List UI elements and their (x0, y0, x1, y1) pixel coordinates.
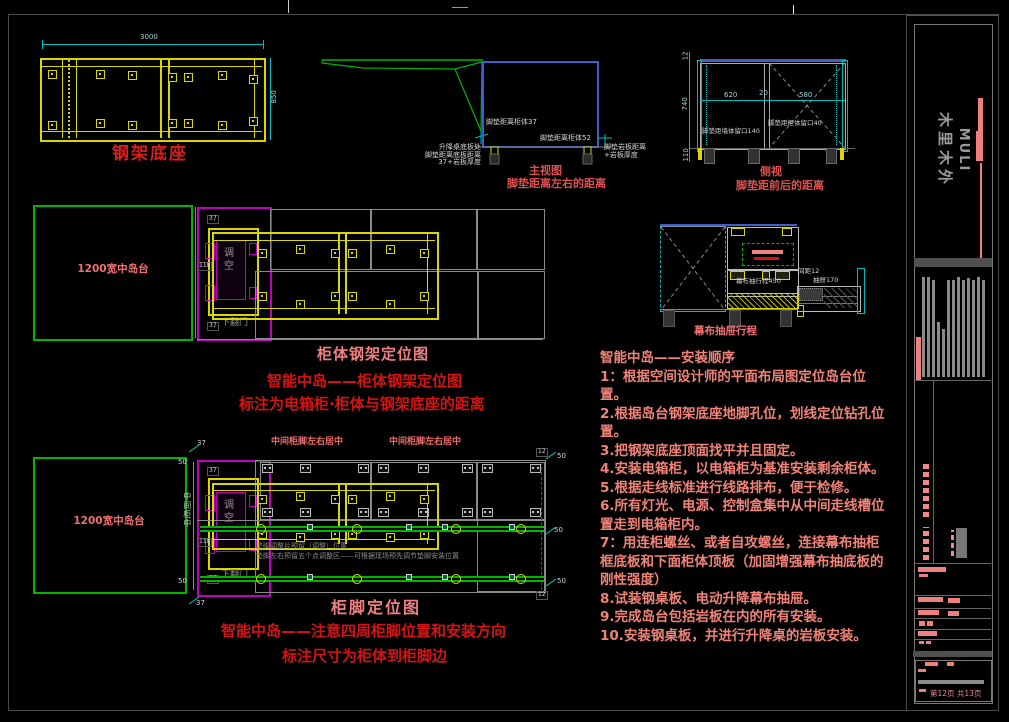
dim-12: 12 (683, 51, 691, 60)
field-text (918, 597, 943, 602)
caption-drawer-travel: 幕布抽屉行程 (694, 326, 757, 338)
field-text (919, 641, 924, 644)
registration-tick (793, 5, 794, 14)
field-text (927, 621, 933, 626)
connector-plate (48, 70, 57, 79)
foot (704, 148, 715, 164)
brand-lockup: MULI 木里木外 (925, 105, 971, 195)
connector-plate (386, 300, 395, 309)
fitting (782, 228, 792, 236)
foot-strip (840, 148, 844, 160)
foot-circle (451, 574, 461, 584)
foot-circle (256, 524, 266, 534)
plan-title: 柜脚定位图 (331, 599, 421, 617)
frame-member (62, 60, 63, 138)
cad-sheet: 3000 850 钢架底座 (0, 0, 1009, 722)
connector-plate (249, 117, 258, 126)
side-post (842, 60, 848, 152)
island-label: 1200宽中岛台 (53, 264, 173, 276)
dim-50: 50 (557, 453, 566, 461)
plan-note-2: 标注尺寸为柜体到柜脚边 (282, 648, 447, 665)
foot (788, 148, 800, 164)
x-brace (769, 63, 845, 148)
plan-note-2: 标注为电箱柜·柜体与钢架底座的距离 (239, 396, 485, 413)
top-rail (700, 59, 846, 62)
instruction-step: 7：用连柜螺丝、或者自攻螺丝，连接幕布抽柜框底板和下面柜体顶板（加固增强幕布抽底… (600, 534, 892, 590)
inner-dotted (836, 65, 837, 145)
foot-circle (451, 524, 461, 534)
frame-line (214, 308, 435, 309)
section-line (914, 380, 991, 381)
x-brace (661, 227, 725, 310)
dim-12: 12 (536, 448, 548, 457)
connector-plate (296, 300, 305, 309)
field-bar (918, 680, 984, 684)
rail-marker (442, 574, 448, 580)
field-text (925, 662, 938, 666)
revision-bar (916, 337, 921, 381)
dim-50: 50 (178, 578, 187, 586)
frame-line (254, 60, 255, 138)
connector-plate (348, 249, 357, 258)
caption-side-view: 侧视 (760, 166, 782, 178)
plan-note-1: 智能中岛——注意四周柜脚位置和安装方向 (221, 623, 506, 640)
dim-box: 118 (197, 538, 212, 547)
connector-plate (96, 70, 105, 79)
connector-plate (296, 245, 305, 254)
connector-plate (420, 495, 429, 504)
dim-37: 37 (196, 600, 205, 608)
cabinet-outline (477, 209, 545, 270)
brand-name-en: MULI (956, 105, 971, 195)
info-bar (937, 322, 940, 377)
label-cabinet-gap: 脚垫距柜体留口40 (768, 120, 822, 127)
dim-box: 118 (197, 262, 212, 271)
revision-bar (978, 98, 983, 131)
connector-plate (128, 71, 137, 80)
label-travel: 幕布抽行程450 (736, 278, 781, 285)
foot-marker (300, 464, 311, 473)
instruction-step: 10.安装钢桌板，并进行升降桌的岩板安装。 (600, 627, 892, 646)
info-bar (927, 277, 930, 377)
connector-plate (48, 121, 57, 130)
rail-marker (406, 574, 412, 580)
dim-box: 37 (207, 467, 219, 476)
frame-line (214, 539, 435, 540)
connector-plate (420, 292, 429, 301)
connector-plate (386, 492, 395, 501)
caption-side-view-sub: 脚垫距前后的距离 (736, 180, 824, 192)
vertical-field-block (956, 528, 967, 558)
foot-marker (530, 508, 541, 517)
row-line (914, 618, 991, 619)
adjust-note-1: 垫脚调整片预留（调整）位置 (256, 543, 347, 551)
field-text (919, 689, 926, 692)
page-number: 第12页 共13页 (930, 690, 981, 698)
connector-plate (168, 119, 177, 128)
registration-tick (288, 0, 289, 13)
field-text (919, 621, 925, 626)
side-post (697, 60, 702, 152)
installation-instructions: 智能中岛——安装顺序 1：根据空间设计师的平面布局图定位岛台位置。 2.根据岛台… (600, 349, 892, 645)
row-line (914, 629, 991, 630)
foot-marker (262, 464, 273, 473)
top-center-label: 中间柜脚左右居中 (389, 438, 461, 448)
note-lift-board: 升降桌底板处 脚垫距离底板距离 37+岩板厚度 (425, 144, 481, 167)
plan-note-1: 智能中岛——柜体钢架定位图 (267, 373, 462, 390)
dim-50: 50 (554, 527, 563, 535)
frame-line (42, 66, 262, 67)
drawer-block (799, 288, 823, 301)
revision-bar (976, 131, 983, 161)
screen-bar-red (754, 257, 779, 260)
info-bar (962, 280, 965, 377)
dim-line (42, 44, 264, 45)
connector-plate (184, 73, 193, 82)
foot-circle (516, 524, 526, 534)
foot-marker (462, 508, 473, 517)
dim-line (700, 100, 845, 101)
cabinet-baseline (197, 339, 543, 340)
brand-name-cn: 木里木外 (935, 105, 956, 195)
connector-plate (348, 495, 357, 504)
label-gap: 间距12 (798, 268, 819, 275)
dim-110: 110 (683, 148, 691, 161)
registration-tick (452, 7, 468, 8)
field-text (948, 611, 959, 616)
frame-member-dotted (68, 60, 70, 138)
frame-member (338, 234, 347, 314)
dim-box: 37 (207, 322, 219, 331)
info-bar (942, 329, 945, 377)
info-bar (952, 280, 955, 377)
instruction-step: 5.根据走线标准进行线路排布，便于检修。 (600, 479, 892, 498)
frame-line (427, 234, 428, 314)
drawing-title: 钢架底座 (112, 145, 188, 164)
note-rock-slab: 脚垫岩板距离 +岩板厚度 (604, 144, 656, 159)
foot-marker (462, 464, 473, 473)
connector-plate (128, 121, 137, 130)
vertical-field-text (923, 527, 929, 560)
instruction-step: 1：根据空间设计师的平面布局图定位岛台位置。 (600, 368, 892, 405)
foot (826, 148, 837, 164)
field-text (918, 610, 939, 615)
foot-circle (256, 574, 266, 584)
connector-plate (218, 121, 227, 130)
screen-bar (752, 250, 783, 254)
vertical-field-text (951, 530, 954, 556)
info-bar (957, 277, 960, 377)
info-bar (932, 280, 935, 377)
dim-box: 37 (207, 215, 219, 224)
sub-column-line (933, 381, 934, 563)
dim-tick (263, 40, 264, 49)
instruction-step: 4.安装电箱柜，以电箱柜为基准安装剩余柜体。 (600, 460, 892, 479)
foot-marker (482, 464, 493, 473)
dim-50: 50 (178, 459, 187, 467)
rail-hatched (727, 293, 799, 309)
foot (748, 148, 760, 164)
foot-circle (352, 574, 362, 584)
foot (780, 310, 792, 327)
dim-width: 3000 (140, 34, 158, 42)
connector-plate (331, 292, 340, 301)
connector-plate (258, 495, 267, 504)
dim-620: 620 (724, 92, 737, 100)
foot-strip (698, 148, 702, 160)
connector-plate (184, 119, 193, 128)
foot-marker (358, 464, 369, 473)
dim-height: 850 (271, 90, 279, 103)
connector-plate (296, 492, 305, 501)
cabinet-outline (477, 271, 545, 339)
titleblock-divider-line (906, 14, 907, 710)
dim-line (195, 207, 196, 338)
connector-plate (258, 292, 267, 301)
foot-marker (530, 464, 541, 473)
rail-marker (406, 524, 412, 530)
instruction-step: 9.完成岛台包括岩板在内的所有安装。 (600, 608, 892, 627)
dim-12: 12 (536, 591, 548, 600)
row-line (914, 639, 991, 640)
field-text (918, 631, 937, 636)
instruction-step: 3.把钢架底座顶面找平并且固定。 (600, 442, 892, 461)
foot-circle (516, 574, 526, 584)
label-drawer: 抽屉170 (813, 277, 838, 284)
side-label: 中间柜中 (182, 492, 191, 528)
label-wall-gap: 脚垫距墙体留口140 (702, 128, 760, 135)
info-bar (977, 277, 980, 377)
connector-plate (386, 245, 395, 254)
rail-marker (307, 574, 313, 580)
plan-title: 柜体钢架定位图 (317, 346, 429, 363)
ebox-door-label: 下翻门 (221, 319, 248, 329)
foot-circle (352, 524, 362, 534)
dim-50: 50 (557, 578, 566, 586)
foot (663, 310, 675, 327)
row-line (914, 595, 991, 596)
revision-bar (980, 163, 982, 258)
drawer-hatch (824, 288, 858, 308)
connector-plate (331, 495, 340, 504)
row-line (914, 608, 991, 609)
info-bar (982, 280, 985, 377)
dim-740: 740 (682, 97, 690, 110)
connector-plate (218, 71, 227, 80)
field-text (918, 567, 946, 572)
info-bar (947, 280, 950, 377)
rail-marker (442, 524, 448, 530)
rail-marker (307, 524, 313, 530)
dim-tick (42, 40, 43, 49)
dim-line (193, 462, 194, 590)
connector-plate (96, 119, 105, 128)
drawer-end-cap (857, 268, 865, 314)
connector-plate (331, 249, 340, 258)
frame-outline (40, 58, 266, 142)
instruction-step: 6.所有灯光、电源、控制盒集中从中间走线槽位置走到电箱柜内。 (600, 497, 892, 534)
frame-line (42, 131, 262, 132)
connector-plate (258, 249, 267, 258)
foot-marker (482, 508, 493, 517)
rail-marker (509, 524, 515, 530)
info-bar (967, 278, 970, 377)
section-divider (913, 651, 992, 657)
instructions-title: 智能中岛——安装顺序 (600, 349, 892, 368)
field-text (919, 574, 928, 577)
top-center-label: 中间柜脚左右居中 (271, 438, 343, 448)
title-block-header-line (906, 15, 998, 16)
island-label: 1200宽中岛台 (49, 516, 169, 528)
fitting (731, 228, 745, 236)
instruction-step: 8.试装钢桌板、电动升降幕布抽屉。 (600, 590, 892, 609)
connector-plate (168, 73, 177, 82)
field-text (947, 662, 954, 666)
screen-zone (742, 243, 794, 266)
frame-line (214, 490, 435, 491)
frame-line (214, 240, 435, 241)
foot-strip (797, 305, 804, 317)
section-divider (914, 258, 992, 267)
foot-rail (200, 576, 544, 582)
connector-plate (348, 292, 357, 301)
foot-rail (200, 526, 544, 532)
field-text (948, 598, 960, 603)
connector-plate (420, 249, 429, 258)
info-bar (922, 277, 925, 377)
connector-plate (386, 533, 395, 542)
row-line (914, 563, 991, 564)
caption-front-view: 主视图 (529, 165, 562, 177)
vertical-field-text (923, 463, 929, 517)
info-bar (972, 280, 975, 377)
connector-plate (296, 533, 305, 542)
field-text (918, 669, 926, 672)
label-foot-left: 脚垫距离柜体37 (486, 119, 537, 127)
dim-20: 20 (759, 90, 768, 98)
field-text (926, 641, 931, 644)
label-foot-right: 脚垫距离柜体52 (540, 135, 591, 143)
dim-580: 580 (799, 92, 812, 100)
rail-marker (509, 574, 515, 580)
steel-frame (212, 232, 439, 320)
connector-plate (249, 75, 258, 84)
adjust-note-2: 垫脚左右预留五个点调整区——可根据现场预先调节垫脚安装位置 (256, 553, 459, 561)
foot-marker (378, 464, 389, 473)
instruction-step: 2.根据岛台钢架底座地脚孔位，划线定位钻孔位置。 (600, 405, 892, 442)
caption-front-view-sub: 脚垫距离左右的距离 (507, 178, 606, 190)
frame-member (76, 60, 77, 138)
foot-marker (418, 464, 429, 473)
